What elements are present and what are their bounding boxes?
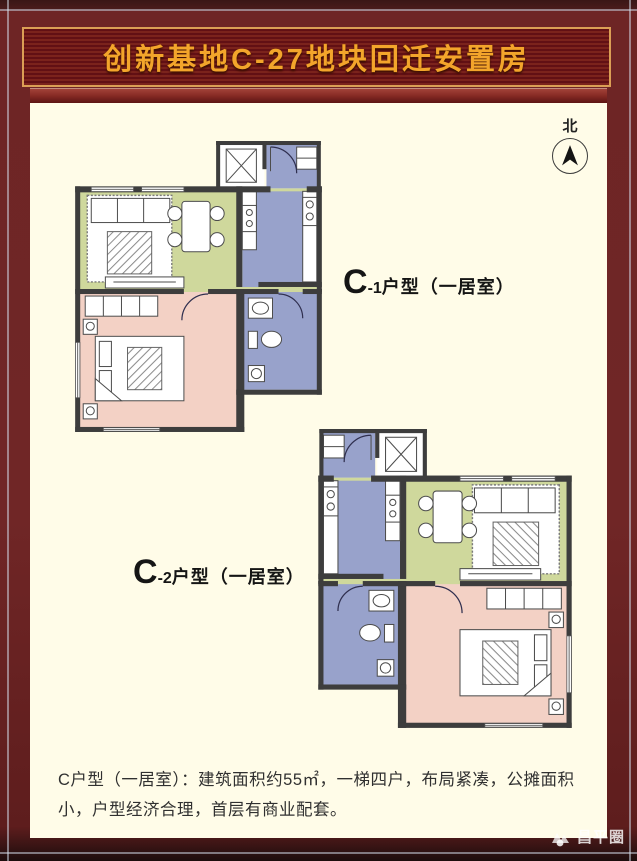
north-arrow-icon [557,142,583,170]
north-compass: 北 [548,115,592,174]
plan-c1-letter: C [343,265,368,299]
frame-guide-line-left [7,0,9,861]
title-banner: 创新基地C-27地块回迁安置房 [22,27,611,87]
frame-guide-line-top [0,9,637,11]
plan-c2-label: C-2户型（一居室） [133,555,305,589]
compass-circle [552,138,588,174]
plan-c1-label: C-1户型（一居室） [343,265,515,299]
plan-c1-suffix: 户型（一居室） [382,273,515,299]
poster-title: 创新基地C-27地块回迁安置房 [103,36,530,78]
unit-description: C户型（一居室）：建筑面积约55㎡，一梯四户，布局紧凑，公摊面积小，户型经济合理… [58,765,586,826]
floorplan-c1 [75,141,322,435]
north-label: 北 [548,115,592,136]
poster-root: { "banner": { "title": "创新基地C-27地块回迁安置房"… [0,0,637,861]
watermark-label: 昌平圈 [577,826,625,847]
content-area: 北 C-1户型（一居室） C-2户型（一居室） C户型（一居室）：建筑面积约55… [30,103,607,838]
plan-c1-number: -1 [368,280,382,298]
mountain-logo-icon [548,827,572,847]
plan-c2-letter: C [133,555,158,589]
frame-guide-line-bottom [0,852,637,854]
watermark: 昌平圈 [548,826,625,847]
plan-c2-number: -2 [158,570,172,588]
banner-bottom-band [30,88,607,104]
floorplan-c2 [311,429,579,731]
plan-c2-suffix: 户型（一居室） [172,563,305,589]
frame-guide-line-right [629,0,631,861]
